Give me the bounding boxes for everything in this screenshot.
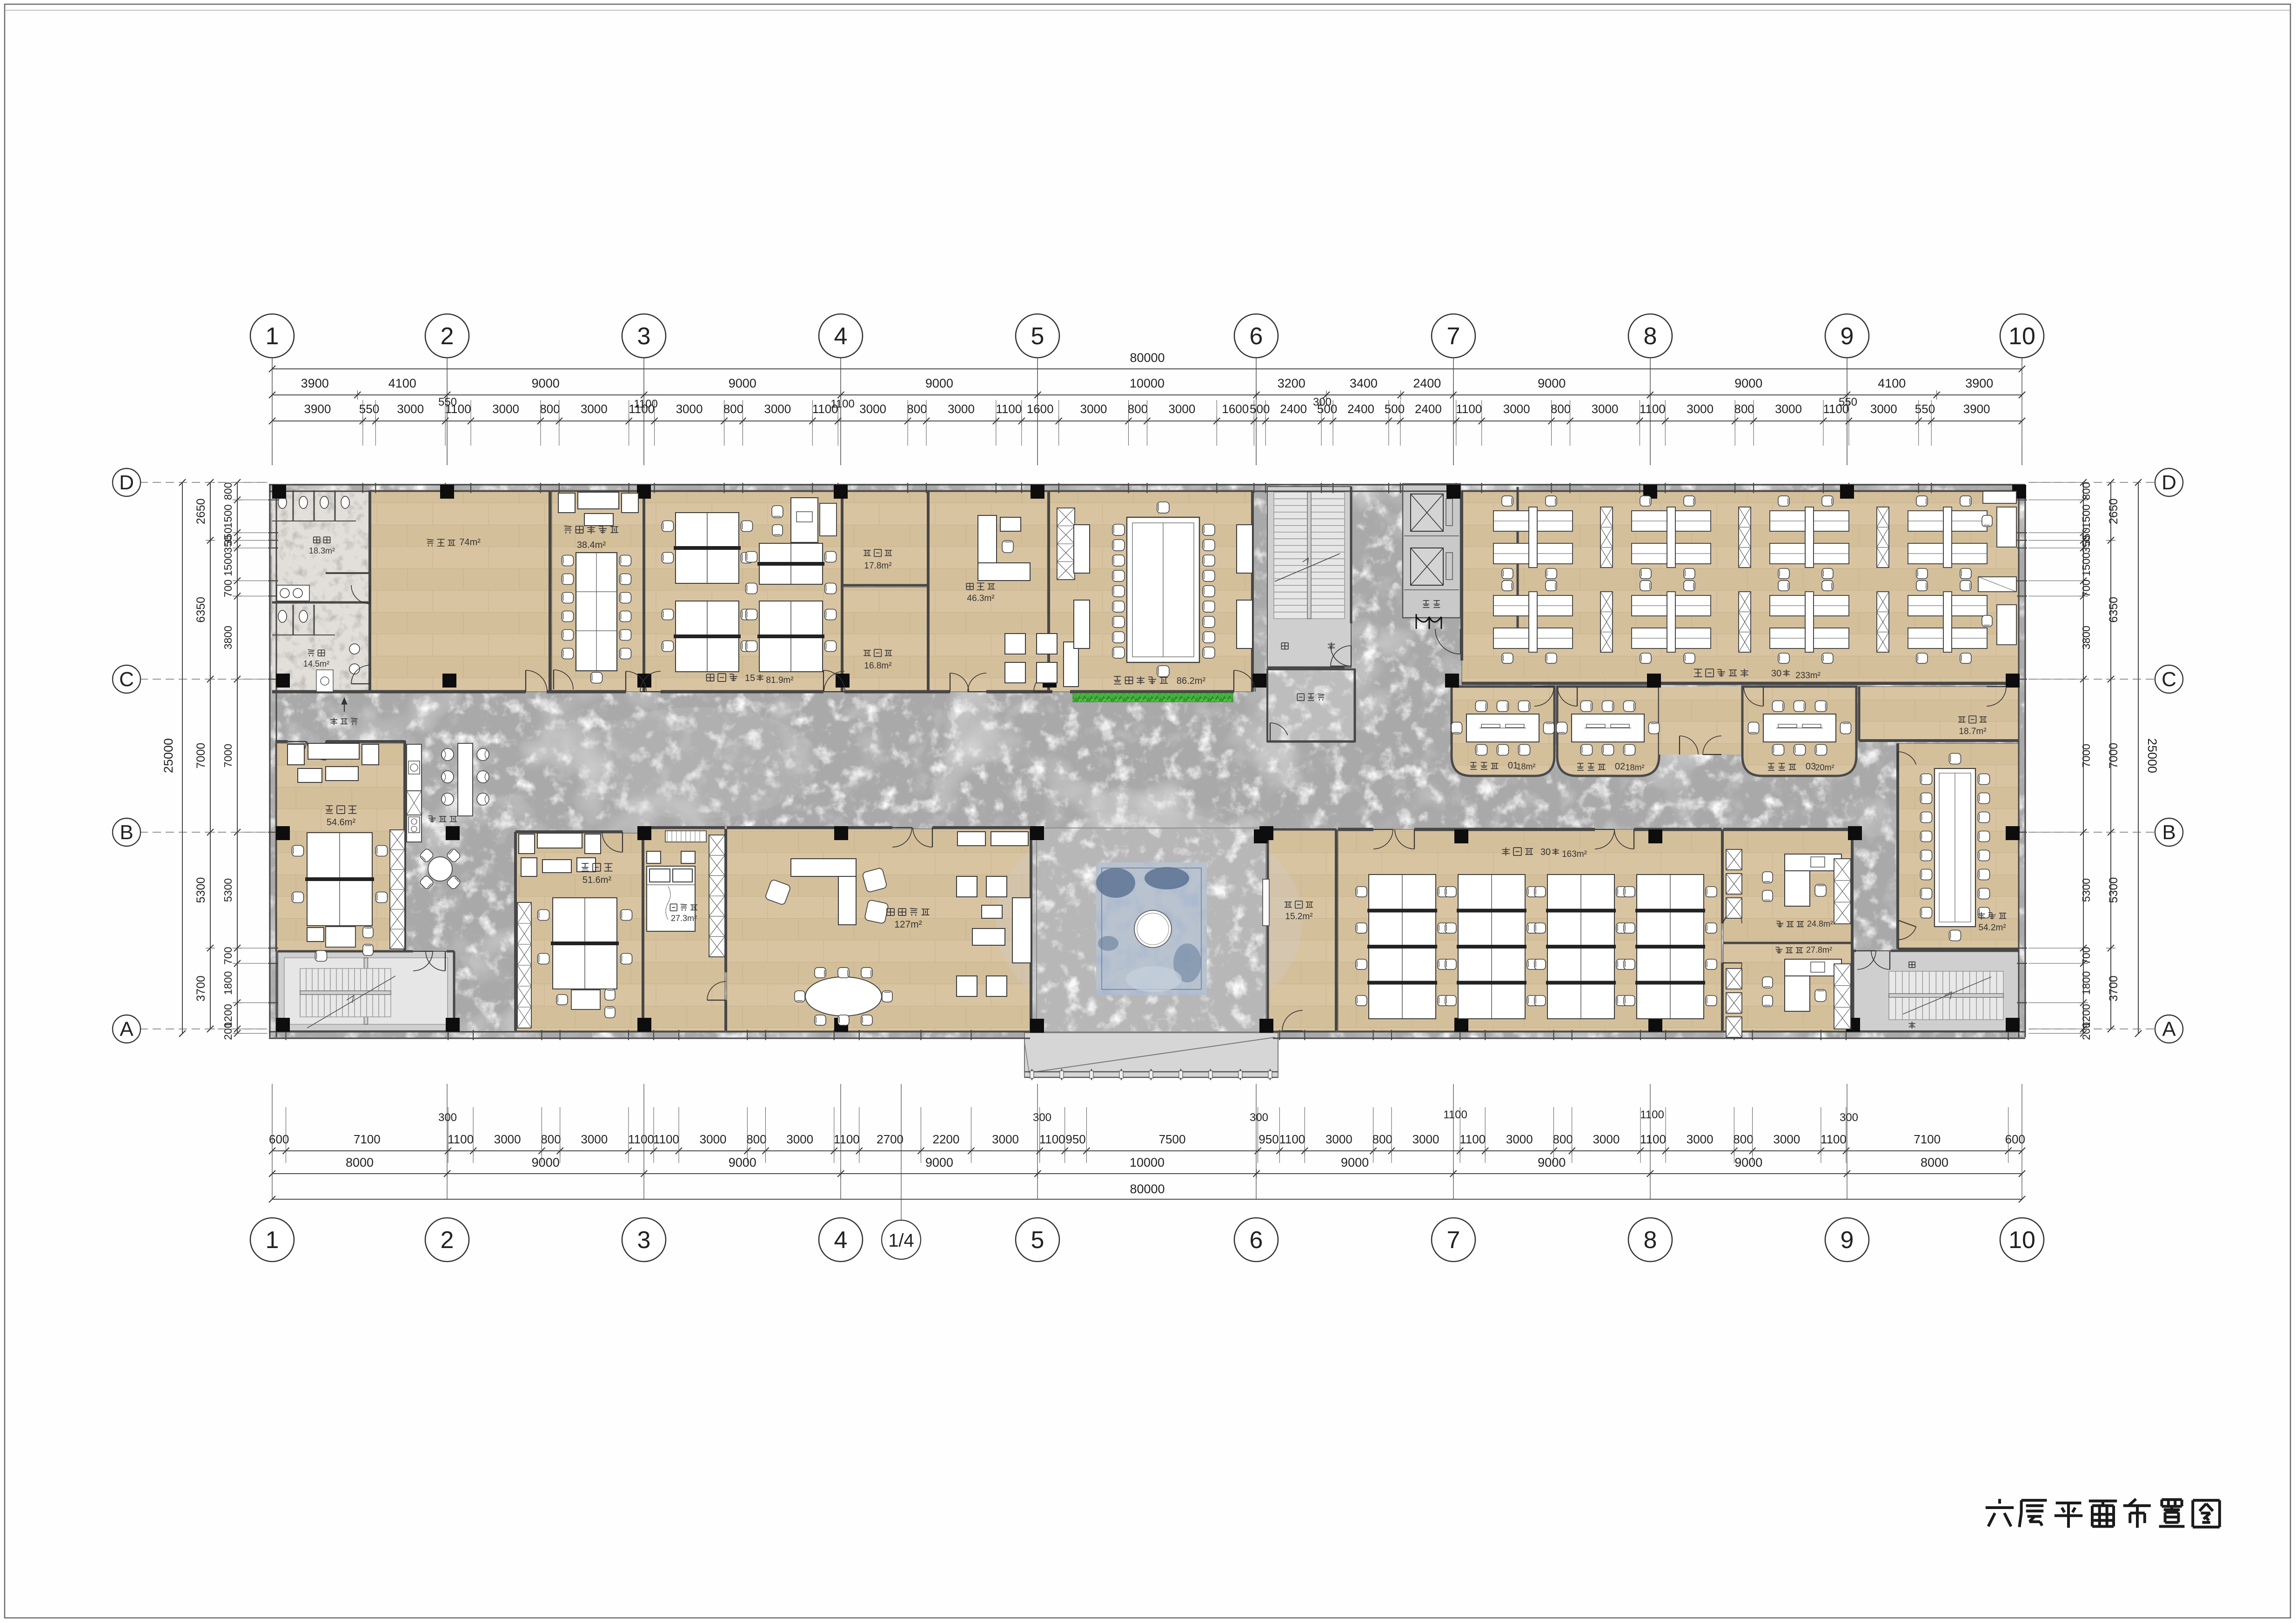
svg-text:3000: 3000 [581, 402, 608, 416]
svg-text:300: 300 [1033, 1111, 1051, 1124]
svg-text:3000: 3000 [676, 402, 703, 416]
svg-text:3000: 3000 [992, 1132, 1019, 1146]
svg-text:25000: 25000 [2145, 738, 2159, 773]
svg-text:1600: 1600 [1222, 402, 1249, 416]
svg-text:4: 4 [834, 323, 848, 350]
svg-text:800: 800 [540, 402, 560, 416]
svg-text:1/4: 1/4 [888, 1230, 914, 1251]
svg-text:3200: 3200 [1278, 376, 1305, 390]
svg-text:300: 300 [1313, 396, 1332, 408]
svg-text:300: 300 [438, 1111, 457, 1124]
svg-text:800: 800 [1734, 402, 1754, 416]
svg-text:C: C [119, 668, 134, 691]
svg-text:2400: 2400 [1413, 376, 1441, 390]
svg-text:1500: 1500 [222, 504, 234, 528]
svg-text:300: 300 [1840, 1111, 1858, 1124]
svg-text:27.8m²: 27.8m² [1806, 945, 1832, 955]
svg-text:233m²: 233m² [1795, 671, 1821, 681]
svg-text:800: 800 [723, 402, 743, 416]
svg-text:3000: 3000 [1773, 1132, 1800, 1146]
svg-text:1100: 1100 [1459, 1132, 1486, 1146]
svg-text:2: 2 [441, 323, 454, 350]
svg-text:18m²: 18m² [1625, 763, 1644, 772]
svg-text:10: 10 [2008, 1227, 2035, 1254]
svg-text:46.3m²: 46.3m² [967, 594, 994, 603]
svg-text:800: 800 [907, 402, 927, 416]
svg-text:3000: 3000 [700, 1132, 727, 1146]
svg-text:9000: 9000 [1734, 1155, 1762, 1169]
svg-text:9000: 9000 [1538, 376, 1566, 390]
svg-text:8: 8 [1644, 1227, 1657, 1254]
svg-text:30: 30 [1771, 668, 1781, 679]
svg-text:1100: 1100 [634, 398, 658, 410]
svg-text:25000: 25000 [161, 738, 175, 773]
svg-text:1100: 1100 [830, 398, 855, 410]
svg-text:800: 800 [746, 1132, 766, 1146]
svg-text:3: 3 [637, 1227, 651, 1254]
svg-text:3000: 3000 [1870, 402, 1897, 416]
svg-text:03: 03 [1806, 761, 1816, 772]
svg-text:9000: 9000 [925, 1155, 953, 1169]
svg-text:3000: 3000 [1412, 1132, 1439, 1146]
svg-text:2650: 2650 [2107, 498, 2120, 524]
svg-text:54.2m²: 54.2m² [1978, 923, 2006, 933]
svg-text:1100: 1100 [1279, 1132, 1305, 1146]
svg-text:1100: 1100 [1640, 402, 1666, 416]
svg-text:2700: 2700 [877, 1132, 904, 1146]
svg-text:1500: 1500 [2080, 553, 2092, 576]
svg-text:8: 8 [1644, 323, 1657, 350]
svg-text:163m²: 163m² [1562, 849, 1587, 859]
svg-text:30: 30 [1540, 847, 1551, 857]
svg-text:16.8m²: 16.8m² [864, 661, 891, 671]
svg-text:2: 2 [441, 1227, 454, 1254]
svg-text:10000: 10000 [1130, 1155, 1165, 1169]
svg-text:1: 1 [266, 1227, 279, 1254]
svg-text:5300: 5300 [222, 878, 234, 902]
svg-text:8000: 8000 [346, 1155, 374, 1169]
svg-text:1: 1 [266, 323, 279, 350]
svg-text:9000: 9000 [532, 1155, 560, 1169]
svg-text:38.4m²: 38.4m² [577, 540, 606, 550]
svg-text:2200: 2200 [932, 1132, 959, 1146]
svg-text:300: 300 [1250, 1111, 1268, 1124]
svg-text:3000: 3000 [1592, 402, 1619, 416]
svg-text:15: 15 [745, 673, 755, 683]
svg-text:3800: 3800 [2080, 626, 2092, 649]
svg-text:3000: 3000 [1325, 1132, 1352, 1146]
svg-text:1800: 1800 [222, 971, 234, 995]
svg-text:550: 550 [1915, 402, 1935, 416]
svg-text:800: 800 [222, 482, 234, 500]
svg-text:3900: 3900 [1965, 376, 1993, 390]
svg-text:86.2m²: 86.2m² [1177, 676, 1206, 686]
svg-text:10000: 10000 [1130, 376, 1165, 390]
svg-text:4: 4 [834, 1227, 848, 1254]
svg-text:5300: 5300 [2107, 877, 2120, 903]
svg-text:800: 800 [1128, 402, 1148, 416]
svg-text:1100: 1100 [1039, 1132, 1065, 1146]
svg-text:500: 500 [1250, 402, 1270, 416]
svg-text:1100: 1100 [1821, 1132, 1847, 1146]
svg-text:5300: 5300 [2080, 878, 2092, 902]
svg-text:3900: 3900 [1963, 402, 1990, 416]
svg-text:3000: 3000 [1168, 402, 1195, 416]
svg-text:5: 5 [1031, 1227, 1044, 1254]
svg-text:4100: 4100 [1878, 376, 1906, 390]
svg-text:200: 200 [2080, 1022, 2092, 1040]
svg-text:9000: 9000 [1734, 376, 1762, 390]
svg-text:54.6m²: 54.6m² [327, 817, 356, 828]
svg-text:6: 6 [1250, 1227, 1263, 1254]
svg-text:4100: 4100 [388, 376, 416, 390]
svg-text:6350: 6350 [2107, 597, 2120, 623]
svg-text:800: 800 [1551, 402, 1571, 416]
svg-text:3800: 3800 [222, 626, 234, 649]
svg-text:3000: 3000 [1687, 402, 1714, 416]
svg-text:2650: 2650 [194, 498, 208, 524]
svg-text:2400: 2400 [1347, 402, 1374, 416]
svg-text:3900: 3900 [304, 402, 331, 416]
svg-text:800: 800 [541, 1132, 561, 1146]
svg-text:350: 350 [2080, 535, 2092, 553]
svg-text:700: 700 [222, 947, 234, 964]
svg-text:C: C [2162, 668, 2176, 691]
svg-text:02: 02 [1615, 761, 1625, 772]
svg-text:3000: 3000 [492, 402, 519, 416]
svg-text:550: 550 [1839, 396, 1857, 408]
svg-text:3000: 3000 [581, 1132, 608, 1146]
svg-text:18.3m²: 18.3m² [309, 546, 335, 555]
svg-text:7000: 7000 [222, 744, 234, 768]
svg-text:9000: 9000 [532, 376, 560, 390]
svg-text:74m²: 74m² [459, 537, 481, 548]
svg-text:800: 800 [2080, 482, 2092, 500]
svg-text:18m²: 18m² [1516, 762, 1535, 771]
svg-text:A: A [2162, 1018, 2176, 1041]
svg-text:1100: 1100 [448, 1132, 474, 1146]
svg-text:8000: 8000 [1921, 1155, 1948, 1169]
svg-text:3400: 3400 [1350, 376, 1378, 390]
svg-text:3000: 3000 [764, 402, 791, 416]
svg-text:500: 500 [1385, 402, 1405, 416]
svg-text:D: D [2162, 471, 2176, 494]
svg-text:1100: 1100 [834, 1132, 860, 1146]
svg-text:7000: 7000 [2080, 744, 2092, 768]
svg-text:950: 950 [1258, 1132, 1279, 1146]
svg-text:9000: 9000 [1538, 1155, 1566, 1169]
svg-text:1100: 1100 [1456, 402, 1482, 416]
svg-text:15.2m²: 15.2m² [1285, 912, 1312, 922]
svg-text:5: 5 [1031, 323, 1044, 350]
svg-text:700: 700 [2080, 947, 2092, 964]
svg-text:127m²: 127m² [894, 919, 922, 930]
svg-text:B: B [2162, 821, 2176, 844]
svg-text:1100: 1100 [1443, 1109, 1467, 1121]
svg-text:9: 9 [1841, 323, 1854, 350]
svg-text:3700: 3700 [194, 975, 208, 1002]
svg-text:3: 3 [637, 323, 651, 350]
svg-text:A: A [120, 1018, 134, 1041]
svg-text:1100: 1100 [1640, 1109, 1664, 1121]
svg-text:7: 7 [1447, 1227, 1460, 1254]
svg-text:9000: 9000 [729, 376, 756, 390]
svg-text:3000: 3000 [1775, 402, 1802, 416]
svg-text:1800: 1800 [2080, 971, 2092, 995]
svg-text:7000: 7000 [194, 743, 208, 769]
svg-text:80000: 80000 [1130, 351, 1165, 365]
svg-text:7100: 7100 [354, 1132, 381, 1146]
svg-text:3000: 3000 [786, 1132, 813, 1146]
svg-text:800: 800 [1553, 1132, 1573, 1146]
svg-text:17.8m²: 17.8m² [864, 561, 891, 571]
svg-text:D: D [119, 471, 134, 494]
svg-text:80000: 80000 [1130, 1182, 1165, 1196]
svg-text:550: 550 [359, 402, 379, 416]
svg-text:6: 6 [1250, 323, 1263, 350]
svg-text:18.7m²: 18.7m² [1959, 727, 1986, 736]
svg-text:1500: 1500 [222, 553, 234, 576]
svg-text:200: 200 [222, 1022, 234, 1040]
svg-text:350: 350 [222, 535, 234, 553]
svg-text:800: 800 [1372, 1132, 1392, 1146]
svg-text:3000: 3000 [1593, 1132, 1620, 1146]
svg-text:51.6m²: 51.6m² [582, 875, 612, 885]
svg-text:3000: 3000 [1687, 1132, 1714, 1146]
svg-text:800: 800 [1733, 1132, 1753, 1146]
svg-text:10: 10 [2008, 323, 2035, 350]
svg-text:1600: 1600 [1027, 402, 1054, 416]
svg-text:7100: 7100 [1914, 1132, 1941, 1146]
svg-text:2400: 2400 [1280, 402, 1307, 416]
svg-text:700: 700 [222, 580, 234, 597]
svg-text:7: 7 [1447, 323, 1460, 350]
svg-text:550: 550 [438, 396, 457, 408]
svg-text:81.9m²: 81.9m² [766, 675, 793, 685]
svg-text:700: 700 [2080, 580, 2092, 597]
svg-text:9: 9 [1841, 1227, 1854, 1254]
svg-text:3000: 3000 [1503, 402, 1530, 416]
svg-text:3000: 3000 [1080, 402, 1107, 416]
svg-text:27.3m²: 27.3m² [671, 914, 697, 923]
svg-text:3000: 3000 [397, 402, 424, 416]
svg-text:1500: 1500 [2080, 504, 2092, 528]
svg-text:950: 950 [1065, 1132, 1085, 1146]
svg-text:1100: 1100 [1640, 1132, 1666, 1146]
svg-text:7500: 7500 [1159, 1132, 1186, 1146]
svg-text:1100: 1100 [628, 1132, 654, 1146]
svg-text:20m²: 20m² [1815, 763, 1834, 772]
svg-text:3000: 3000 [859, 402, 886, 416]
svg-text:B: B [120, 821, 133, 844]
svg-text:24.8m²: 24.8m² [1807, 919, 1833, 928]
svg-text:9000: 9000 [729, 1155, 756, 1169]
svg-text:7000: 7000 [2107, 743, 2120, 769]
svg-text:3000: 3000 [494, 1132, 521, 1146]
svg-text:3700: 3700 [2107, 975, 2120, 1002]
svg-text:6350: 6350 [194, 597, 208, 623]
svg-text:9000: 9000 [925, 376, 953, 390]
svg-text:5300: 5300 [194, 877, 208, 903]
svg-text:9000: 9000 [1341, 1155, 1369, 1169]
svg-text:14.5m²: 14.5m² [303, 659, 329, 668]
svg-text:1100: 1100 [996, 402, 1022, 416]
svg-text:3900: 3900 [301, 376, 329, 390]
svg-text:3000: 3000 [1506, 1132, 1533, 1146]
svg-text:3000: 3000 [948, 402, 975, 416]
svg-text:2400: 2400 [1415, 402, 1442, 416]
svg-text:1100: 1100 [653, 1132, 679, 1146]
